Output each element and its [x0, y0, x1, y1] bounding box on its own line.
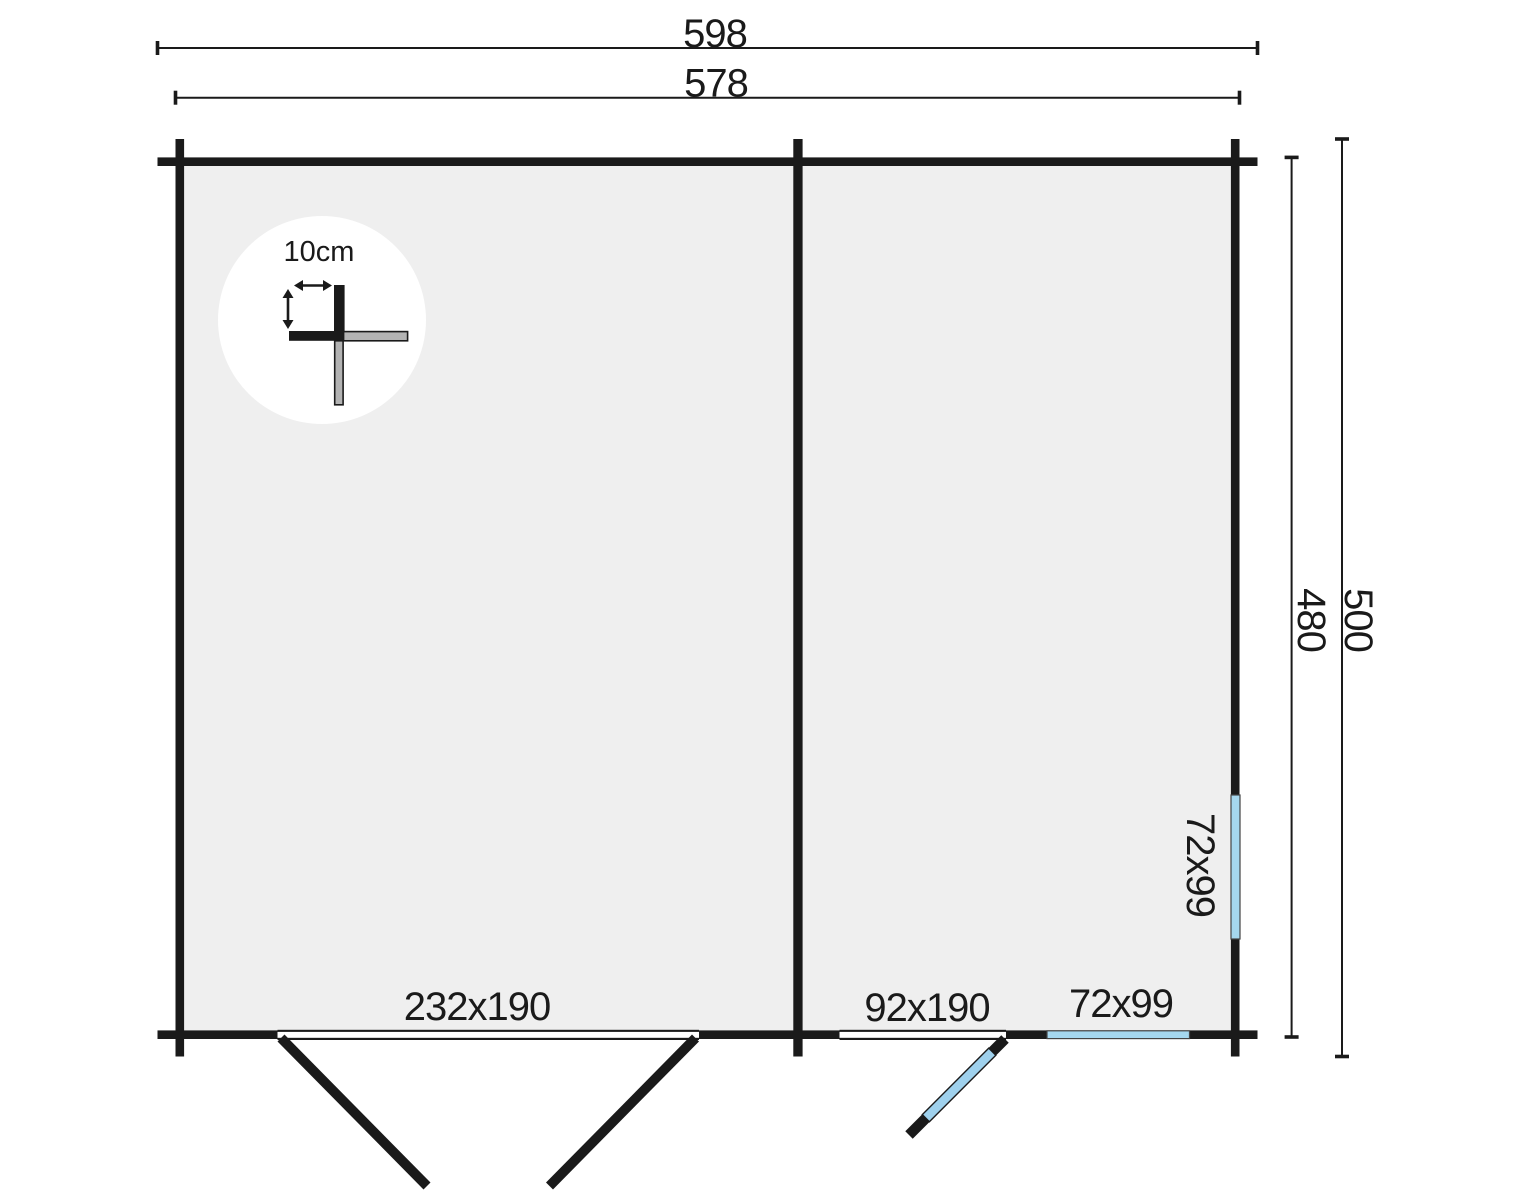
svg-text:500: 500 [1336, 588, 1380, 652]
svg-text:480: 480 [1289, 588, 1333, 652]
svg-text:232x190: 232x190 [404, 985, 550, 1029]
svg-text:72x99: 72x99 [1069, 982, 1173, 1026]
svg-text:92x190: 92x190 [864, 986, 989, 1030]
svg-text:598: 598 [683, 12, 747, 56]
svg-text:72x99: 72x99 [1178, 813, 1222, 917]
svg-text:578: 578 [684, 62, 748, 106]
svg-text:10cm: 10cm [284, 236, 355, 268]
